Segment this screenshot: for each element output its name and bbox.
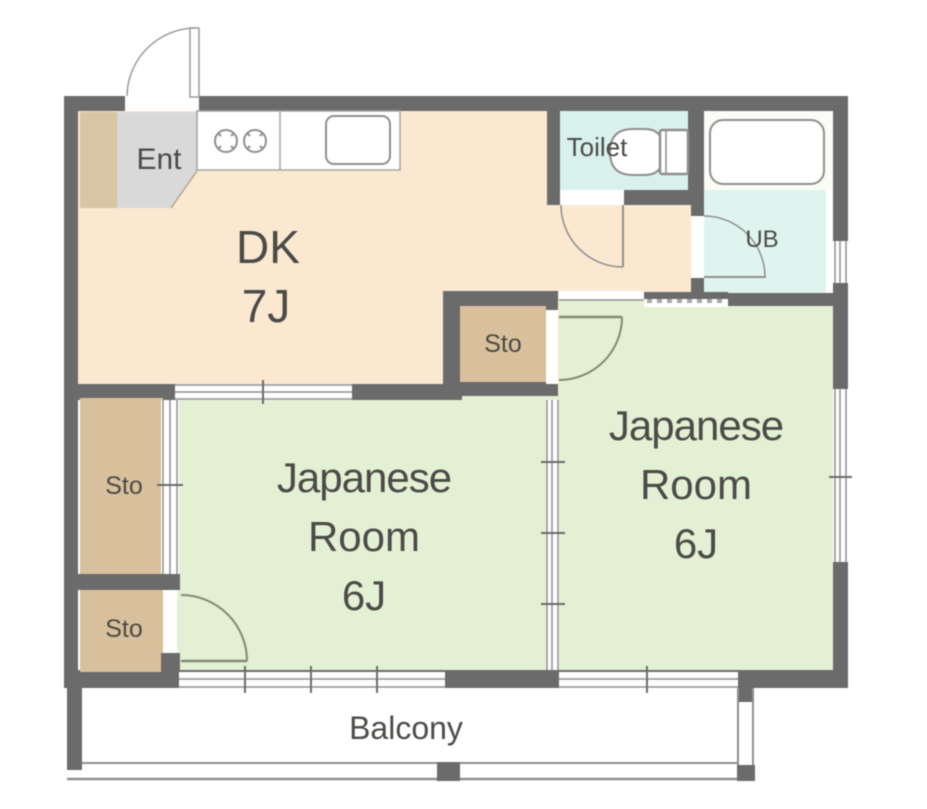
svg-text:Toilet: Toilet	[567, 132, 628, 162]
svg-text:Sto: Sto	[105, 472, 143, 500]
svg-text:Japanese: Japanese	[277, 454, 451, 501]
svg-text:7J: 7J	[242, 280, 291, 332]
svg-text:Room: Room	[308, 513, 420, 560]
svg-text:Sto: Sto	[105, 615, 143, 643]
svg-text:Room: Room	[640, 461, 752, 508]
svg-text:DK: DK	[236, 221, 300, 273]
svg-text:Sto: Sto	[484, 330, 522, 358]
svg-text:Japanese: Japanese	[609, 402, 783, 449]
svg-text:Ent: Ent	[136, 143, 182, 176]
svg-text:6J: 6J	[674, 520, 718, 567]
svg-text:UB: UB	[745, 226, 778, 253]
svg-text:6J: 6J	[342, 572, 386, 619]
svg-text:Balcony: Balcony	[349, 710, 463, 746]
